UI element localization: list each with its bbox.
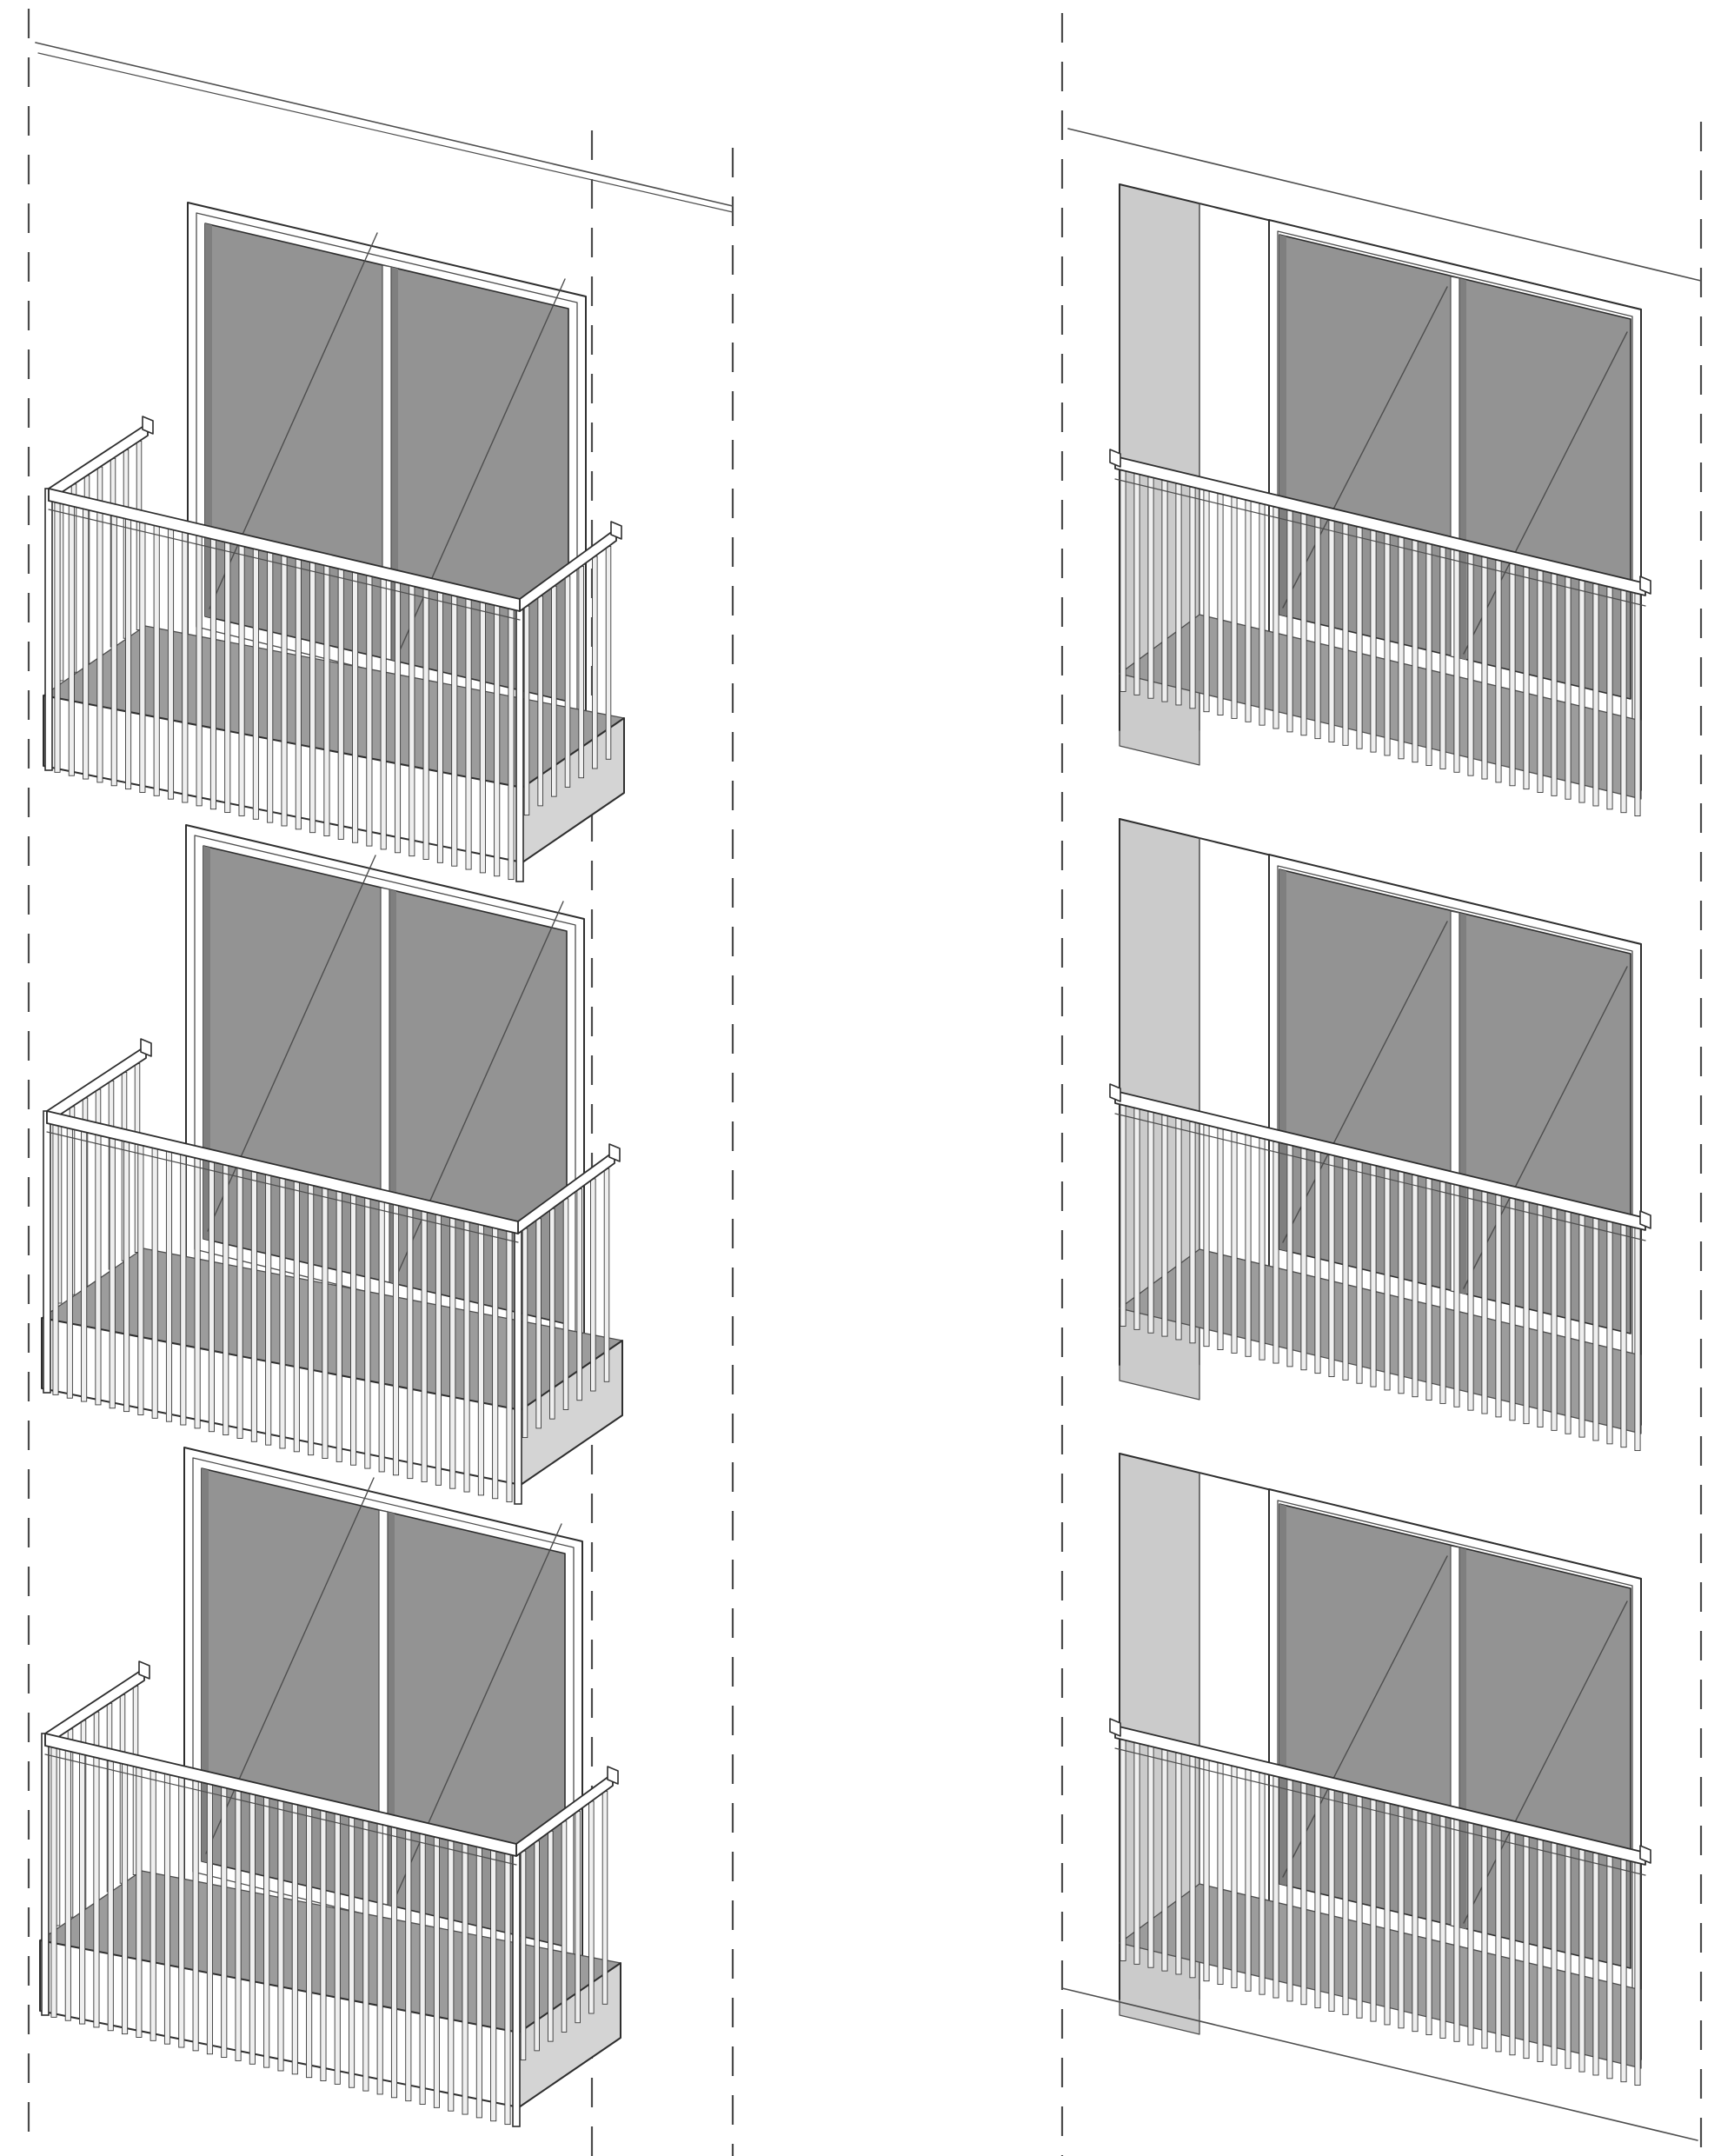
recessed-balcony-floor-3: [1110, 1454, 1651, 2086]
drawing-sheet: [0, 0, 1721, 2156]
recessed-balcony-column: [1062, 129, 1701, 2140]
balcony-axonometric-drawing: [0, 0, 1721, 2156]
projecting-balcony-column: [36, 43, 733, 2126]
projecting-balcony-floor-2: [42, 825, 622, 1504]
recessed-balcony-floor-1: [1110, 184, 1651, 816]
projecting-balcony-floor-3: [40, 1447, 621, 2126]
recessed-balcony-floor-2: [1110, 819, 1651, 1451]
facade-top-edge: [36, 43, 733, 212]
projecting-balcony-floor-1: [43, 203, 624, 882]
